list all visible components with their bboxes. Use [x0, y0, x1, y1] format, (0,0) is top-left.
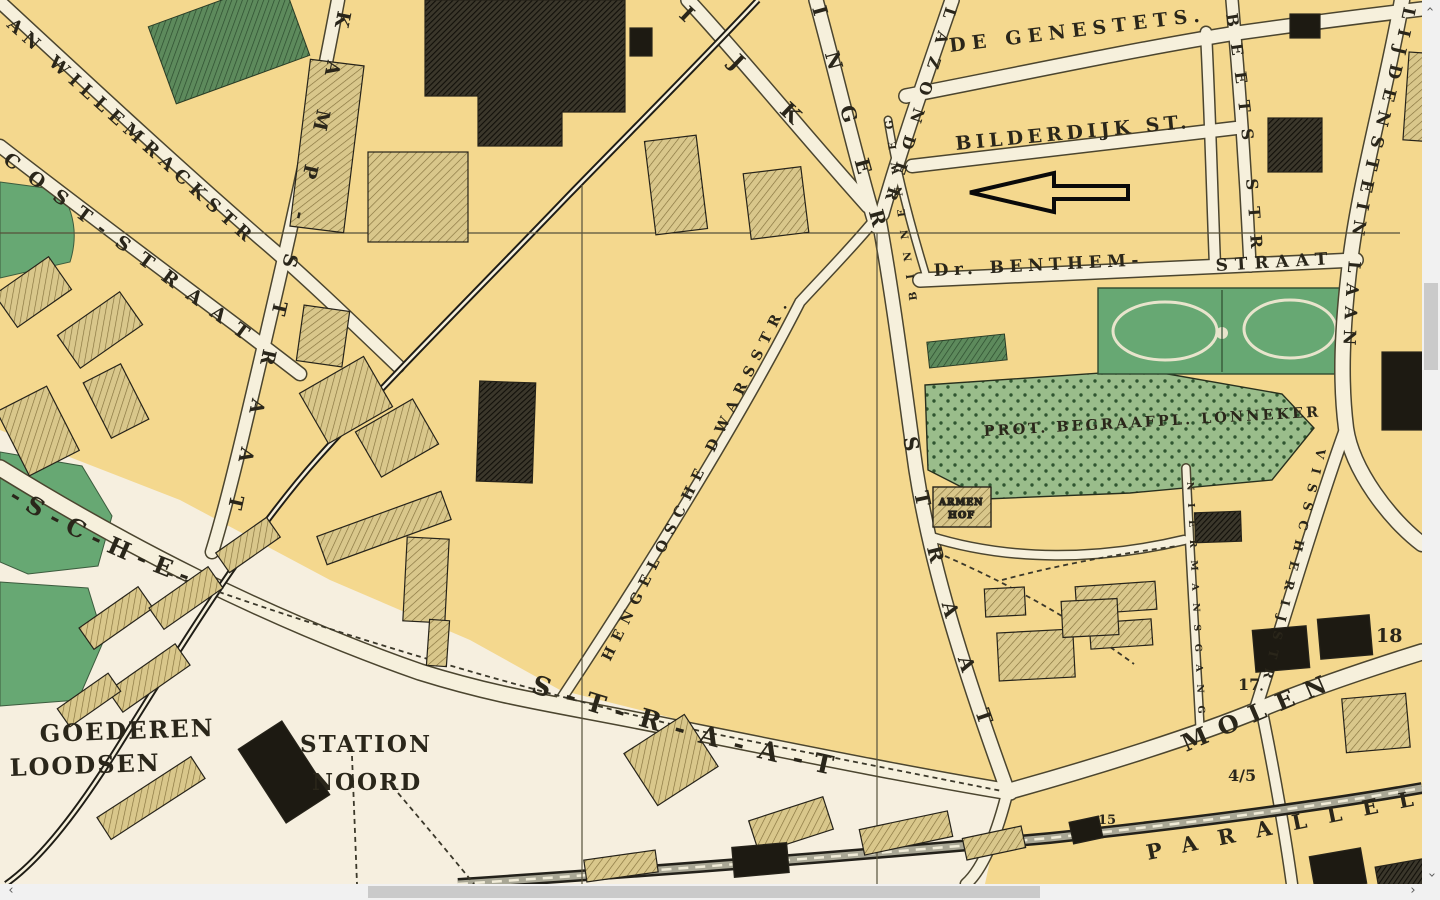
vertical-scrollbar[interactable]: › ›: [1422, 0, 1440, 884]
place-label-goederen: GOEDEREN: [39, 713, 215, 748]
vertical-scrollbar-thumb[interactable]: [1424, 283, 1438, 370]
number-label-17: 17: [1238, 675, 1260, 694]
number-label-15: 15: [1098, 813, 1116, 828]
number-label-18: 18: [1376, 625, 1402, 647]
park-area-ovals: [1098, 288, 1346, 374]
place-label-loodsen: LOODSEN: [9, 748, 161, 782]
hof-label-1: ARMEN: [938, 498, 984, 508]
map-viewer-window: ARMEN HOF AN WILLEMRACKSTR COST-STRAAT K…: [0, 0, 1440, 900]
scroll-down-icon[interactable]: ›: [1424, 868, 1438, 882]
horizontal-scrollbar[interactable]: ‹ ›: [0, 884, 1422, 900]
historic-city-map: ARMEN HOF AN WILLEMRACKSTR COST-STRAAT K…: [0, 0, 1422, 884]
scroll-up-icon[interactable]: ›: [1424, 2, 1438, 16]
number-label-45: 4/5: [1228, 766, 1256, 785]
map-canvas[interactable]: ARMEN HOF AN WILLEMRACKSTR COST-STRAAT K…: [0, 0, 1422, 884]
place-label-station: STATION: [300, 731, 432, 758]
hof-enclosure: ARMEN HOF: [933, 487, 991, 527]
place-label-noord: NOORD: [312, 769, 422, 796]
scrollbar-corner: [1422, 884, 1440, 900]
scroll-right-icon[interactable]: ›: [1406, 884, 1420, 898]
scroll-left-icon[interactable]: ‹: [4, 884, 18, 898]
cemetery-area: [925, 370, 1314, 499]
hof-label-2: HOF: [948, 510, 975, 521]
horizontal-scrollbar-thumb[interactable]: [368, 886, 1040, 898]
